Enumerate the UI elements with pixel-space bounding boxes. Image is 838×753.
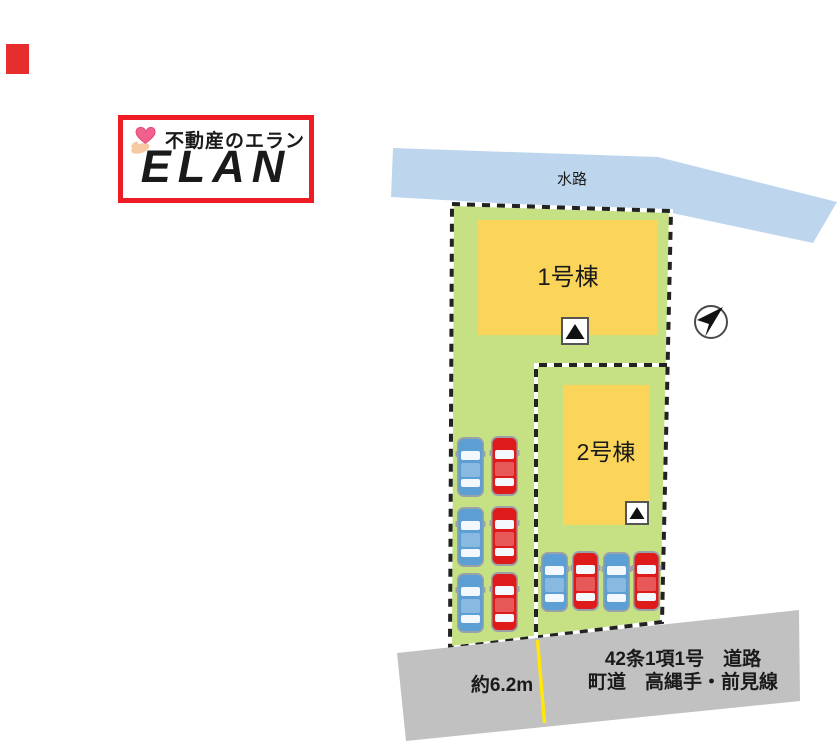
car-blue xyxy=(456,437,486,497)
building-2-label: 2号棟 xyxy=(577,439,636,465)
car-blue xyxy=(602,552,632,612)
car-blue xyxy=(456,507,486,567)
north-arrow-icon xyxy=(695,306,727,338)
site-plan-page: 不動産のエラン ELAN 水路 1号棟 xyxy=(0,0,838,753)
car-blue xyxy=(456,573,486,633)
car-blue xyxy=(540,552,570,612)
road-width-label: 約6.2m xyxy=(471,673,533,696)
car-red xyxy=(490,506,520,566)
car-red xyxy=(632,551,662,611)
site-plan: 水路 1号棟 2号棟 xyxy=(0,0,838,753)
car-red xyxy=(490,572,520,632)
building-1-label: 1号棟 xyxy=(537,264,598,291)
road-name-label: 町道 高縄手・前見線 xyxy=(588,670,778,693)
road-type-label: 42条1項1号 道路 xyxy=(605,647,762,670)
water-label: 水路 xyxy=(557,171,587,188)
car-red xyxy=(571,551,601,611)
entrance-icon xyxy=(626,502,648,524)
car-red xyxy=(490,436,520,496)
entrance-icon xyxy=(562,318,588,344)
